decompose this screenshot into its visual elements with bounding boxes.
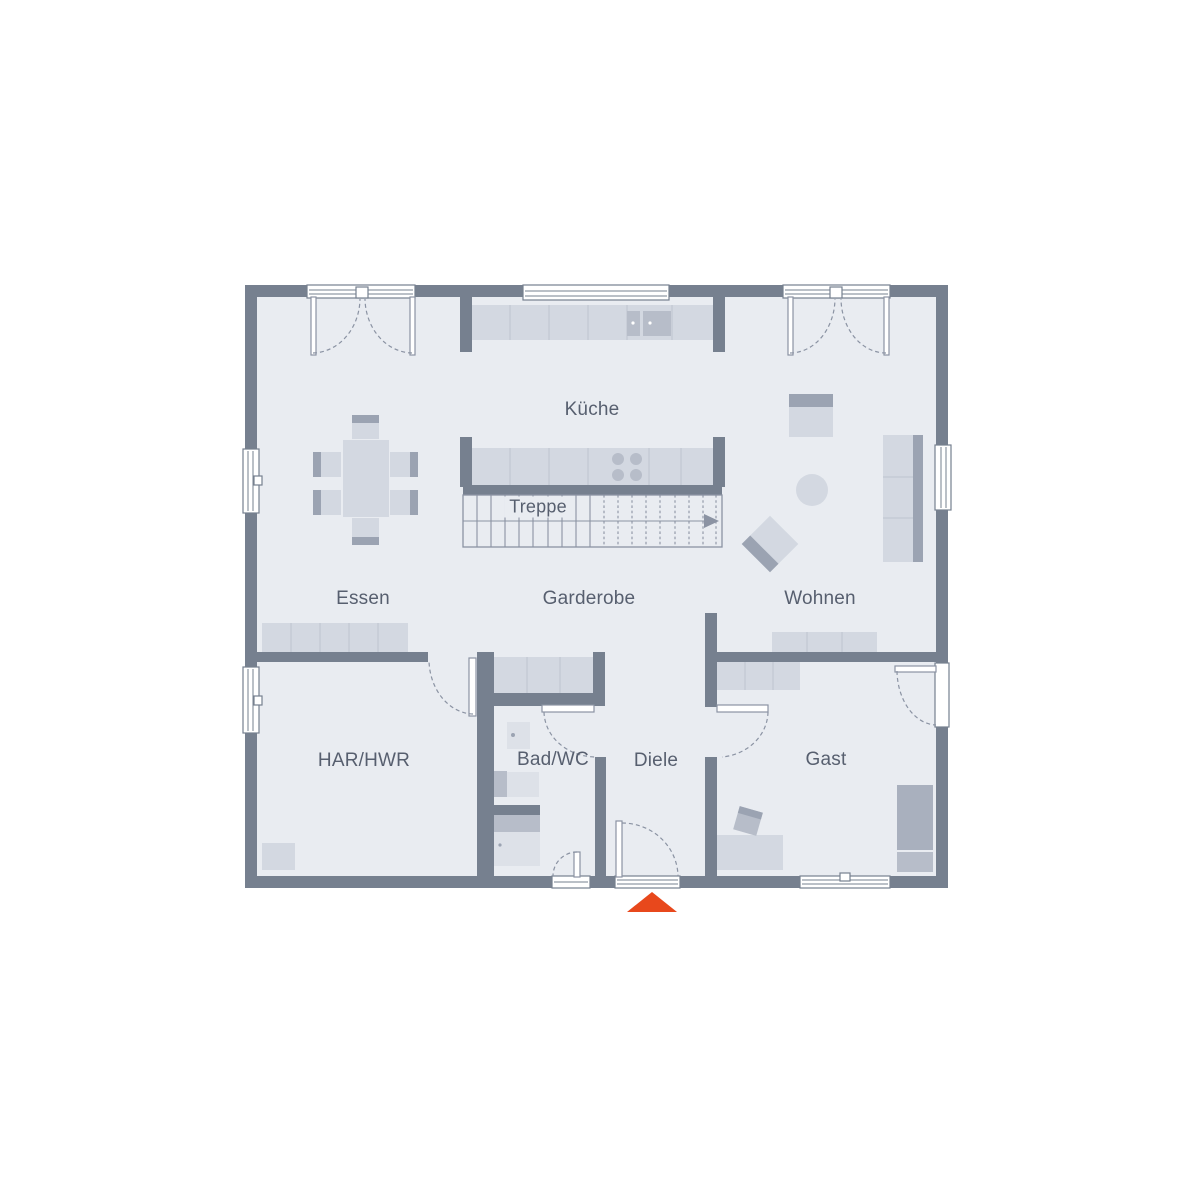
room-label-gast: Gast (806, 749, 847, 771)
window-essen-left (243, 449, 262, 513)
room-label-diele: Diele (634, 750, 678, 772)
dining-table (343, 440, 389, 517)
armchair-wohnen (789, 394, 833, 437)
kitchen-counter-bottom (472, 448, 713, 485)
floorplan-page: Küche Treppe Essen Garderobe Wohnen HAR/… (0, 0, 1200, 1200)
room-label-har-hwr: HAR/HWR (318, 750, 410, 772)
sideboard-gast (717, 662, 800, 690)
room-label-treppe: Treppe (504, 497, 572, 518)
room-label-garderobe: Garderobe (543, 588, 636, 610)
entrance-marker-icon (627, 892, 677, 912)
bed-gast (897, 785, 933, 872)
wc-bad (494, 771, 539, 797)
kitchen-appliance-icon (643, 311, 671, 336)
shutter-box-icon (356, 287, 368, 298)
sink-bad (507, 722, 530, 749)
staircase (463, 495, 722, 547)
garderobe-cabinet (494, 657, 593, 693)
window-kueche (523, 285, 669, 300)
window-handle-icon (254, 476, 262, 485)
window-wohnen-right (935, 445, 951, 510)
desk-gast (717, 835, 783, 870)
window-handle-icon (840, 873, 850, 881)
sideboard-wohnen (772, 632, 877, 652)
sideboard-essen (262, 623, 408, 652)
window-handle-icon (254, 696, 262, 705)
shower-bad (494, 815, 540, 866)
room-label-bad-wc: Bad/WC (517, 749, 589, 771)
room-label-kueche: Küche (565, 399, 620, 421)
har-unit (262, 843, 295, 870)
coffee-table-wohnen (796, 474, 828, 506)
shutter-box-icon (830, 287, 842, 298)
window-har-left (243, 667, 262, 733)
room-label-wohnen: Wohnen (784, 588, 856, 610)
room-label-essen: Essen (336, 588, 390, 610)
kitchen-counter-top (472, 305, 713, 340)
sofa-wohnen (883, 435, 923, 562)
